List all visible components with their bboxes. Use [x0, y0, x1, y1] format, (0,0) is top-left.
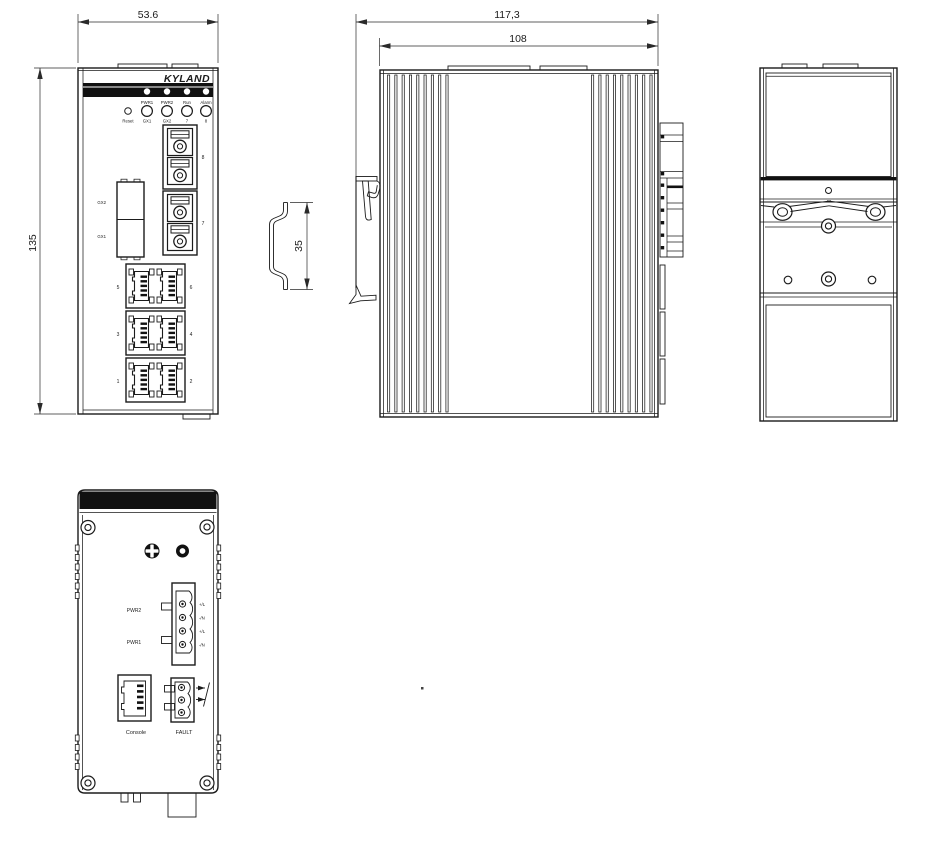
led-label-pwr1: PWR1 [141, 100, 154, 105]
rj45-port-icon [157, 269, 182, 303]
screw-icon [81, 776, 95, 790]
dim-front-width: 53.6 [78, 9, 218, 63]
ground-icon [144, 543, 159, 558]
band-led-dot [203, 88, 209, 94]
dim-front-width-value: 53.6 [138, 9, 159, 21]
pwr1-label: PWR1 [127, 640, 142, 646]
led-label-run: Run [183, 100, 191, 105]
front-panel-edge [80, 492, 217, 510]
fiber-port-group-7: 7 [163, 191, 205, 255]
dim-side-overall: 117,3 [356, 9, 658, 176]
pin-label-2: -/N [199, 616, 205, 621]
fiber-port-7-label: 7 [202, 221, 205, 227]
port-6-label: 6 [190, 285, 193, 291]
screw-icon [81, 521, 95, 535]
rear-upper-panel [766, 73, 891, 177]
front-view: 53.6 135 KYLAND [27, 9, 218, 419]
port-2-label: 2 [190, 379, 193, 385]
sc-fiber-port-icon [168, 195, 193, 222]
sc-fiber-port-icon [168, 224, 193, 251]
sc-fiber-port-icon [168, 158, 193, 185]
port-4-label: 4 [190, 332, 193, 338]
dim-rail-height: 35 [290, 203, 313, 290]
screw-icon [200, 520, 214, 534]
pin-label-4: -/N [199, 643, 205, 648]
fault-terminal: FAULT [165, 678, 210, 736]
rear-view [760, 64, 897, 421]
fault-label: FAULT [176, 730, 193, 736]
reset-button [125, 108, 132, 115]
led-indicator [162, 106, 173, 117]
dim-rail-height-value: 35 [293, 240, 305, 252]
side-enclosure [380, 66, 658, 417]
rj45-port-icon [129, 269, 154, 303]
gx2-slot-label: GX2 [97, 200, 106, 205]
port-5-label: 5 [117, 285, 120, 291]
technical-drawing-page: 53.6 135 KYLAND [0, 0, 939, 848]
dim-side-body-value: 108 [509, 33, 527, 45]
band-led-dot [144, 88, 150, 94]
rj45-port-icon [129, 316, 154, 350]
led-band [83, 83, 213, 97]
drawing-svg: 53.6 135 KYLAND [0, 0, 939, 848]
rj45-port-icon [129, 363, 154, 397]
port-hole-icon [178, 546, 187, 555]
fiber-port-8-label: 8 [202, 155, 205, 161]
console-label: Console [126, 730, 146, 736]
edge-serrations [75, 545, 220, 770]
relay-contact-icon [196, 683, 210, 707]
gx1-slot-label: GX1 [97, 234, 106, 239]
sc-fiber-port-icon [168, 129, 193, 156]
dim-side-overall-value: 117,3 [494, 9, 520, 21]
side-connector-protrusions [660, 123, 683, 404]
led-indicator [201, 106, 212, 117]
din-rail-detail: 35 [270, 203, 314, 290]
reset-label: Reset [122, 119, 134, 124]
spring-clip [761, 201, 896, 221]
rj45-block-row3: 1 2 [117, 358, 193, 402]
pin-label-1: +/L [199, 602, 206, 607]
din-clip-release-tab [350, 285, 377, 304]
rj45-block-row2: 3 4 [117, 311, 193, 355]
led-label-7: 7 [186, 119, 189, 124]
rail-profile-outer [270, 203, 284, 290]
screw-icon [200, 776, 214, 790]
led-row: PWR1 PWR2 Run Alarm Reset GX1 GX2 7 8 [122, 100, 212, 124]
console-port: Console [118, 675, 151, 736]
power-terminal-block: PWR2 PWR1 +/L -/N +/L -/N [127, 583, 206, 665]
port-1-label: 1 [117, 379, 120, 385]
led-label-gx2: GX2 [163, 119, 172, 124]
dim-front-height: 135 [27, 68, 76, 414]
rj45-block-row1: 5 6 [117, 264, 193, 308]
dim-front-height-value: 135 [27, 234, 39, 252]
rj45-port-icon [157, 363, 182, 397]
fin-slots-left [388, 75, 449, 412]
gx-slot: GX2 GX1 [97, 179, 144, 260]
stray-dot-mark [421, 687, 424, 690]
pwr2-label: PWR2 [127, 608, 142, 614]
led-label-alarm: Alarm [200, 100, 212, 105]
screw-icon [822, 272, 836, 286]
led-indicator [182, 106, 193, 117]
fin-slots-right [592, 75, 653, 412]
bottom-enclosure [78, 490, 218, 793]
bottom-protrusions [121, 793, 196, 817]
screw-icon [822, 219, 836, 233]
bottom-tab [183, 414, 210, 419]
led-label-gx1: GX1 [143, 119, 152, 124]
dim-side-body: 108 [380, 33, 659, 66]
led-indicator [142, 106, 153, 117]
rj45-port-icon [157, 316, 182, 350]
pin-label-3: +/L [199, 629, 206, 634]
din-clip [350, 176, 381, 304]
led-label-8: 8 [205, 119, 208, 124]
port-3-label: 3 [117, 332, 120, 338]
band-led-dot [164, 88, 170, 94]
rear-lower-panel [766, 305, 891, 417]
side-view: 117,3 108 [350, 9, 684, 417]
fiber-port-group-8: 8 [163, 125, 205, 189]
band-led-dot [184, 88, 190, 94]
bottom-view: PWR2 PWR1 +/L -/N +/L -/N Console [75, 490, 220, 817]
led-label-pwr2: PWR2 [161, 100, 174, 105]
